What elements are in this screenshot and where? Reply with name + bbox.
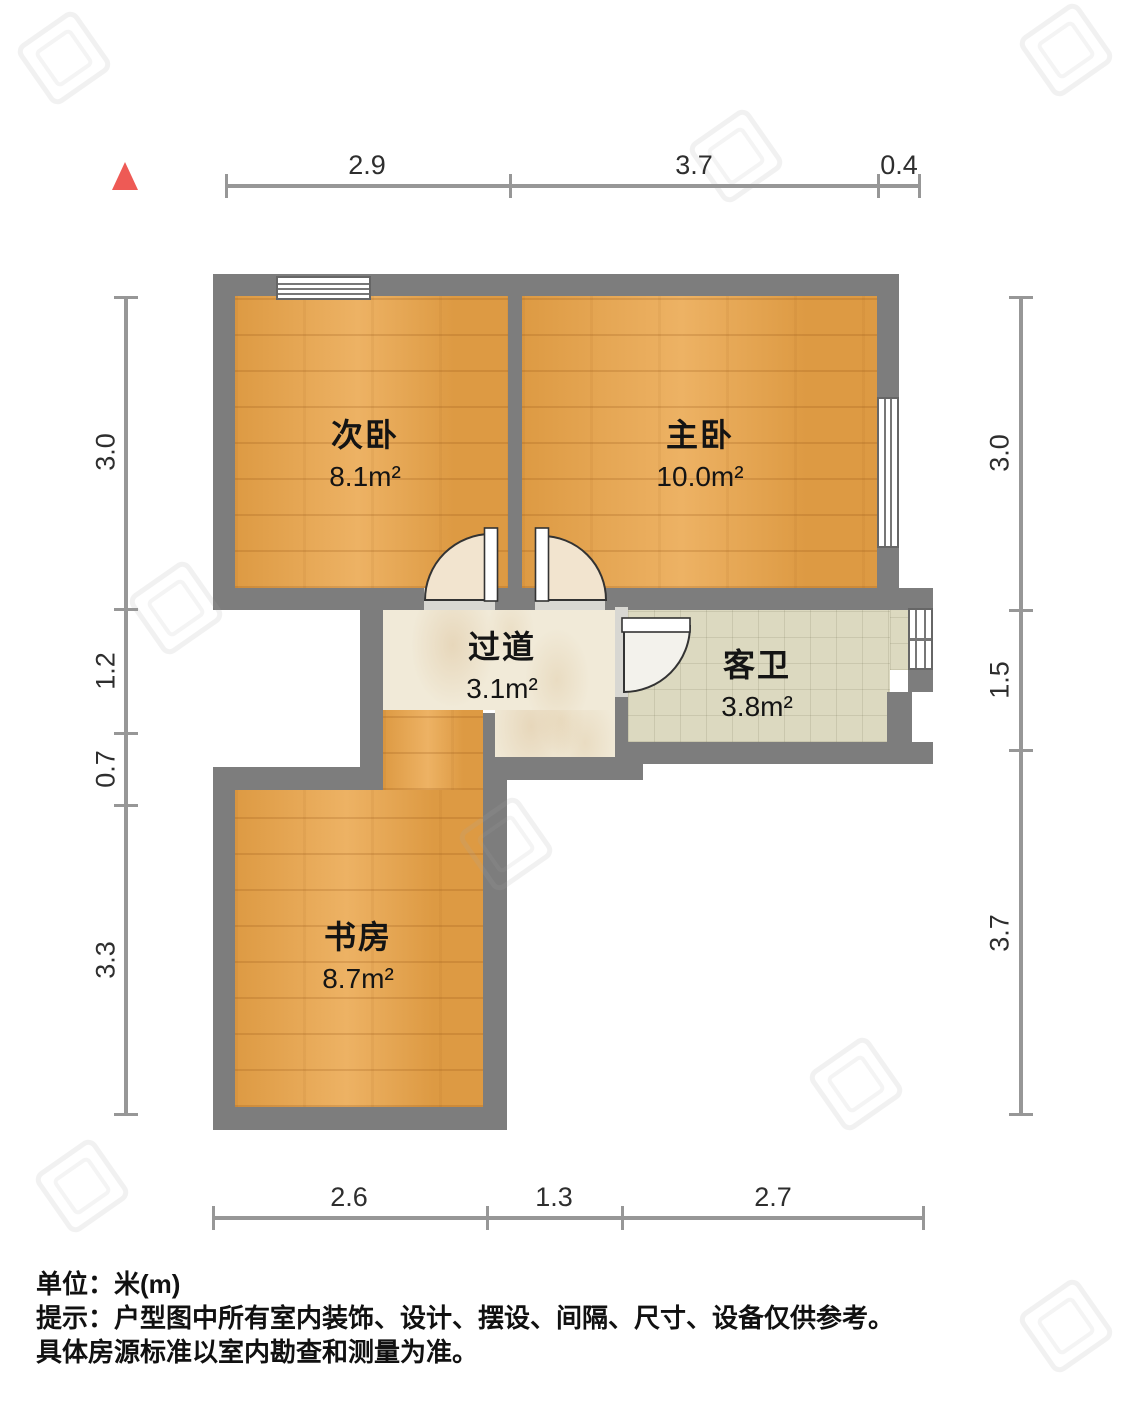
dim-tick — [114, 804, 138, 807]
dim-label-right-3: 3.7 — [985, 914, 1016, 952]
dim-label-right-2: 1.5 — [985, 661, 1016, 699]
room-name: 过道 — [466, 622, 538, 668]
dim-tick — [114, 296, 138, 299]
dim-label-bottom-2: 1.3 — [535, 1182, 573, 1213]
dim-tick — [486, 1206, 489, 1230]
room-guest-bathroom: 客卫 3.8m² — [721, 640, 793, 723]
room-study: 书房 8.7m² — [322, 912, 394, 995]
dim-tick — [922, 1206, 925, 1230]
dim-label-left-2: 1.2 — [91, 652, 122, 690]
dim-label-right-1: 3.0 — [985, 434, 1016, 472]
dim-tick — [509, 174, 512, 198]
dim-label-top-2: 3.7 — [675, 150, 713, 181]
dimension-line-bottom — [212, 1216, 925, 1220]
dim-label-top-3: 0.4 — [880, 150, 918, 181]
dim-tick — [1009, 749, 1033, 752]
door-secondary-bedroom-icon — [425, 534, 491, 600]
dim-label-top-1: 2.9 — [348, 150, 386, 181]
dim-label-left-1: 3.0 — [91, 433, 122, 471]
dim-label-left-3: 0.7 — [91, 750, 122, 788]
north-arrow-icon — [112, 162, 138, 190]
dimension-line-right — [1019, 296, 1023, 1116]
room-area: 10.0m² — [656, 461, 743, 493]
tip-note-line1: 提示：户型图中所有室内装饰、设计、摆设、间隔、尺寸、设备仅供参考。 — [36, 1298, 894, 1335]
room-secondary-bedroom: 次卧 8.1m² — [329, 410, 401, 493]
dim-tick — [1009, 609, 1033, 612]
door-bathroom-icon — [624, 626, 690, 692]
room-master-bedroom: 主卧 10.0m² — [656, 410, 743, 493]
dim-tick — [114, 1113, 138, 1116]
room-name: 次卧 — [329, 410, 401, 456]
dimension-line-left — [124, 296, 128, 1116]
room-area: 8.7m² — [322, 963, 394, 995]
unit-note: 单位：米(m) — [36, 1264, 180, 1301]
dim-tick — [114, 732, 138, 735]
dim-tick — [621, 1206, 624, 1230]
room-hallway: 过道 3.1m² — [466, 622, 538, 705]
dim-tick — [114, 608, 138, 611]
room-area: 3.8m² — [721, 691, 793, 723]
room-area: 8.1m² — [329, 461, 401, 493]
dimension-line-top — [225, 184, 920, 188]
dim-tick — [225, 174, 228, 198]
dim-tick — [212, 1206, 215, 1230]
tip-note-line2: 具体房源标准以室内勘查和测量为准。 — [36, 1332, 478, 1369]
dim-label-left-4: 3.3 — [91, 941, 122, 979]
dim-label-bottom-3: 2.7 — [754, 1182, 792, 1213]
dim-tick — [1009, 296, 1033, 299]
room-area: 3.1m² — [466, 673, 538, 705]
room-name: 主卧 — [656, 410, 743, 456]
floor-plan-canvas: 次卧 8.1m² 主卧 10.0m² 过道 3.1m² 客卫 3.8m² 书房 … — [0, 0, 1144, 1409]
door-master-bedroom-icon — [542, 536, 606, 600]
dim-tick — [918, 174, 921, 198]
room-name: 书房 — [322, 912, 394, 958]
dim-tick — [1009, 1113, 1033, 1116]
dim-label-bottom-1: 2.6 — [330, 1182, 368, 1213]
room-name: 客卫 — [721, 640, 793, 686]
